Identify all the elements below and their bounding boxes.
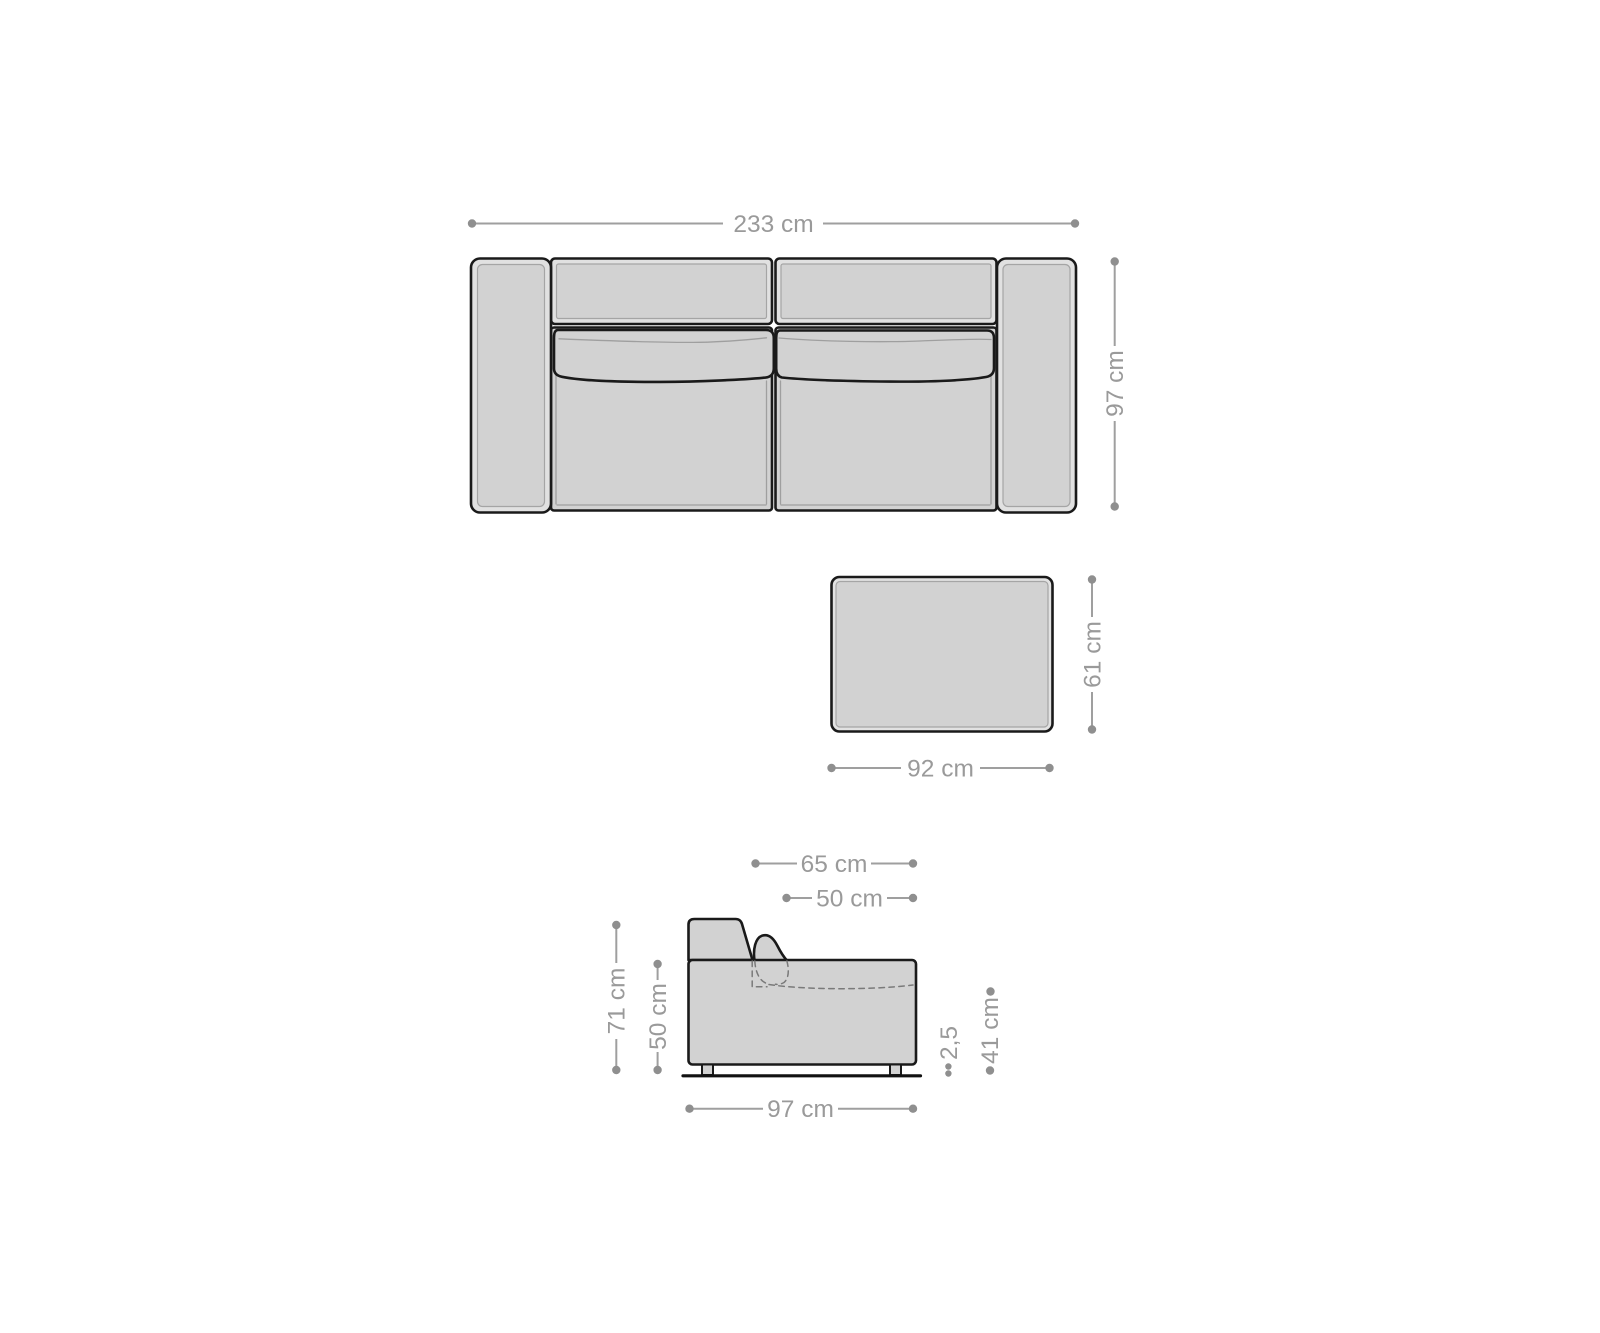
svg-text:97 cm: 97 cm: [767, 1096, 834, 1123]
svg-text:65 cm: 65 cm: [801, 851, 868, 878]
svg-text:50 cm: 50 cm: [645, 983, 672, 1050]
svg-text:71 cm: 71 cm: [604, 968, 631, 1035]
svg-text:2,5: 2,5: [936, 1026, 963, 1060]
svg-text:97 cm: 97 cm: [1102, 350, 1129, 417]
svg-text:50 cm: 50 cm: [816, 886, 883, 913]
svg-text:41 cm: 41 cm: [977, 997, 1004, 1064]
svg-text:233 cm: 233 cm: [733, 211, 813, 238]
svg-text:92 cm: 92 cm: [907, 756, 974, 783]
svg-text:61 cm: 61 cm: [1080, 621, 1107, 688]
